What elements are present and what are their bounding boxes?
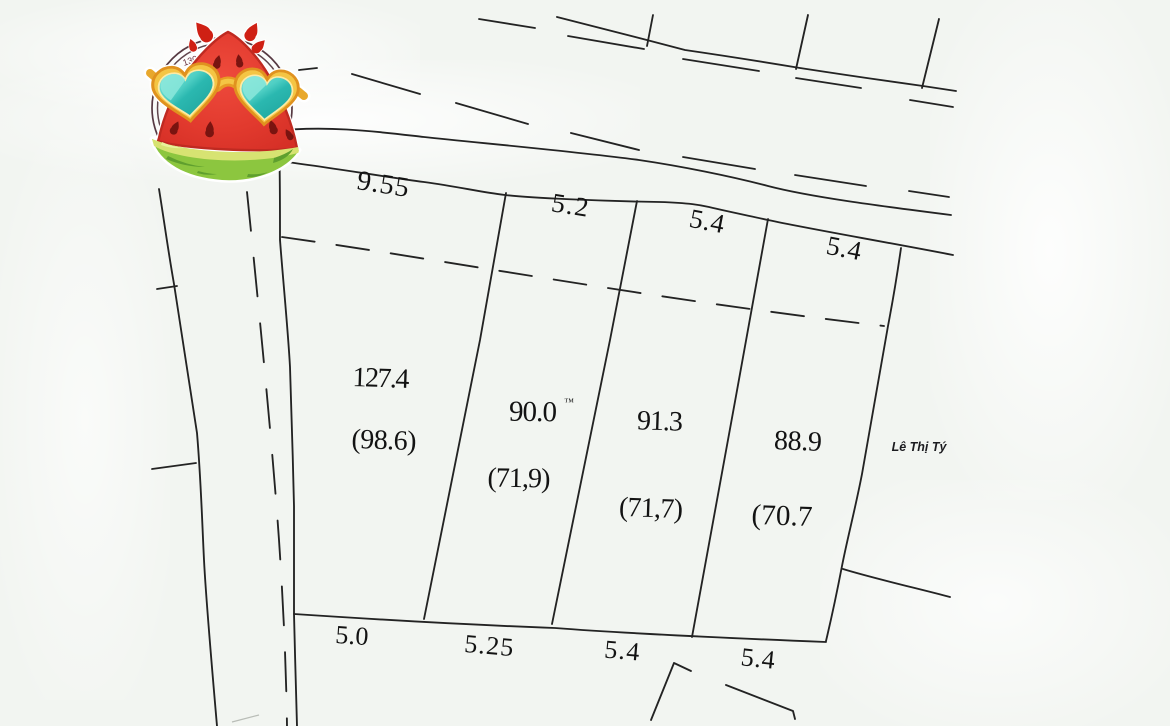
svg-text:5.2: 5.2 bbox=[549, 187, 590, 222]
svg-text:90.0: 90.0 bbox=[509, 396, 558, 429]
svg-text:Lê Thị Tý: Lê Thị Tý bbox=[892, 440, 948, 454]
svg-text:88.9: 88.9 bbox=[773, 425, 822, 458]
svg-text:5.25: 5.25 bbox=[463, 629, 514, 662]
svg-text:91.3: 91.3 bbox=[636, 405, 683, 438]
svg-text:5.0: 5.0 bbox=[334, 620, 369, 651]
svg-text:(71,9): (71,9) bbox=[487, 462, 551, 494]
svg-text:(70.7: (70.7 bbox=[751, 499, 813, 533]
svg-text:(98.6): (98.6) bbox=[351, 424, 417, 457]
svg-text:(71,7): (71,7) bbox=[618, 492, 683, 525]
svg-text:™: ™ bbox=[564, 397, 574, 408]
svg-text:5.4: 5.4 bbox=[740, 642, 777, 674]
svg-text:5.4: 5.4 bbox=[603, 635, 640, 667]
svg-text:127.4: 127.4 bbox=[352, 362, 410, 395]
